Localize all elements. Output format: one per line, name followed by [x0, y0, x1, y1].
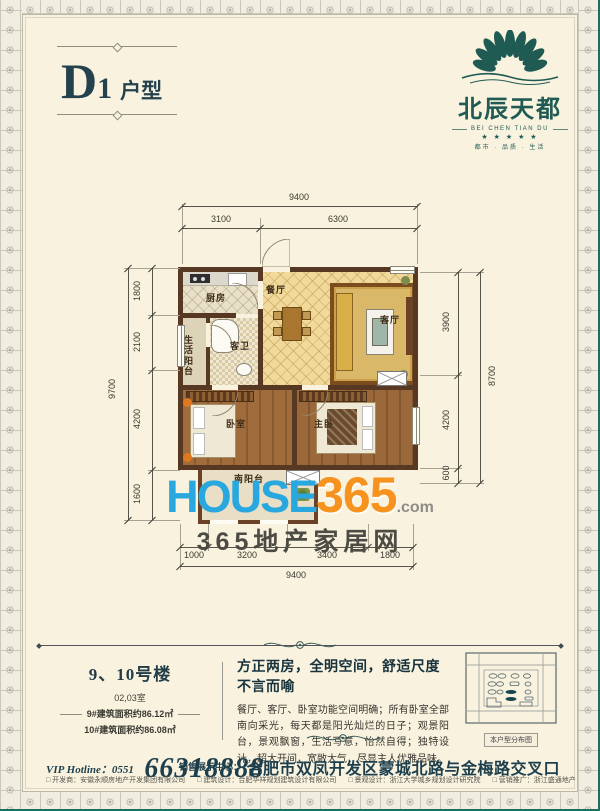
room-label-master: 主卧	[314, 419, 334, 429]
border-band-top	[0, 0, 600, 14]
toilet	[236, 363, 252, 376]
unit-number: 1	[97, 72, 112, 105]
site-minimap: 本户型分布图	[463, 652, 559, 747]
nightstand-lamp	[183, 453, 192, 462]
dim-top-seg1: 3100	[191, 214, 251, 224]
dim-right-seg2: 4200	[441, 398, 451, 442]
dim-left-seg3: 4200	[132, 397, 142, 441]
area-line-2: 10#建筑面积约86.08㎡	[42, 723, 218, 736]
dim-left-total: 9700	[107, 367, 117, 411]
sofa	[336, 293, 353, 371]
dim-left-seg1: 1800	[132, 269, 142, 313]
building-title: 9、10号楼	[42, 660, 218, 685]
chair	[302, 327, 311, 336]
flourish-ornament	[262, 637, 338, 653]
credit-architecture: □ 建筑设计：合肥华祥规划建筑设计有限公司	[197, 775, 336, 785]
watermark-house: HOUSE	[166, 471, 316, 522]
room-label-living: 客厅	[380, 315, 400, 325]
master-door-arc	[302, 390, 328, 416]
stove	[190, 274, 210, 283]
chair	[302, 311, 311, 320]
dim-right-seg1: 3900	[441, 300, 451, 344]
room-label-bedroom: 卧室	[226, 419, 246, 429]
watermark-com: .com	[397, 499, 434, 516]
plant	[401, 276, 410, 285]
credit-developer: □ 开发商：安徽永顺房地产开发集团有限公司	[46, 775, 185, 785]
window	[412, 407, 420, 445]
chair	[273, 311, 282, 320]
dim-top-total: 9400	[269, 192, 329, 202]
unit-title-block: D1户型	[57, 46, 177, 118]
border-band-right	[578, 0, 600, 811]
chair	[273, 327, 282, 336]
fan-logo-icon	[458, 30, 562, 88]
dim-left-seg2: 2100	[132, 320, 142, 364]
room-numbers: 02,03室	[42, 691, 218, 704]
building-info: 9、10号楼 02,03室 9#建筑面积约86.12㎡ 10#建筑面积约86.0…	[42, 660, 218, 736]
credit-marketing: □ 营销推广：浙江盛通地产	[493, 775, 576, 785]
floor-plan: 厨房 餐厅 客厅 生活阳台 客卫 卧室 主卧 南阳台	[178, 267, 418, 470]
room-label-kitchen: 厨房	[206, 293, 226, 303]
description: 方正两房，全明空间，舒适尺度不言而喻 餐厅、客厅、卧室功能空间明确；所有卧室全部…	[237, 656, 449, 768]
area-line-1: 9#建筑面积约86.12㎡	[55, 709, 206, 719]
dining-table	[282, 307, 302, 341]
room-label-life-balcony: 生活阳台	[184, 335, 203, 376]
sales-label: 销售展示中心：	[179, 762, 242, 772]
minimap-label: 本户型分布图	[484, 733, 538, 747]
brand-stars: ★ ★ ★ ★ ★	[452, 133, 568, 141]
room-label-guest-bath: 客卫	[230, 341, 250, 351]
credit-landscape: □ 景观设计：浙江大学城乡规划设计研究院	[348, 775, 480, 785]
brand-logo: 北辰天都 BEI CHEN TIAN DU ★ ★ ★ ★ ★ 都市 · 品质 …	[452, 30, 568, 151]
column-divider	[222, 662, 223, 740]
kitchen-door-arc	[232, 283, 258, 309]
bedroom-door-arc	[212, 390, 238, 416]
unit-suffix: 户型	[120, 79, 162, 103]
tv-cabinet	[406, 297, 413, 355]
watermark-365: 365	[316, 467, 396, 523]
dim-top-seg2: 6300	[308, 214, 368, 224]
dim-right-total: 8700	[487, 354, 497, 398]
nightstand-lamp	[183, 398, 192, 407]
watermark-site-name: 365地产家居网	[140, 522, 460, 558]
brand-name-en: BEI CHEN TIAN DU	[471, 126, 549, 132]
bay-window-icon	[377, 371, 407, 386]
bath-door-arc	[210, 325, 232, 347]
border-band-left	[0, 0, 22, 811]
room-label-dining: 餐厅	[266, 285, 286, 295]
window	[390, 266, 415, 274]
brand-tagline: 都市 · 品质 · 生活	[452, 142, 568, 151]
watermark: HOUSE365.com 365地产家居网	[140, 470, 460, 558]
site-minimap-drawing	[465, 652, 557, 724]
brand-name-zh: 北辰天都	[452, 89, 568, 124]
credits-line: □ 开发商：安徽永顺房地产开发集团有限公司 □ 建筑设计：合肥华祥规划建筑设计有…	[46, 775, 560, 785]
dim-bottom-total: 9400	[266, 570, 326, 580]
page-title: D1户型	[61, 52, 162, 110]
entry-door-arc	[262, 239, 290, 267]
unit-code: D	[61, 53, 97, 109]
flourish-ornament	[305, 730, 381, 746]
description-headline: 方正两房，全明空间，舒适尺度不言而喻	[237, 656, 449, 696]
